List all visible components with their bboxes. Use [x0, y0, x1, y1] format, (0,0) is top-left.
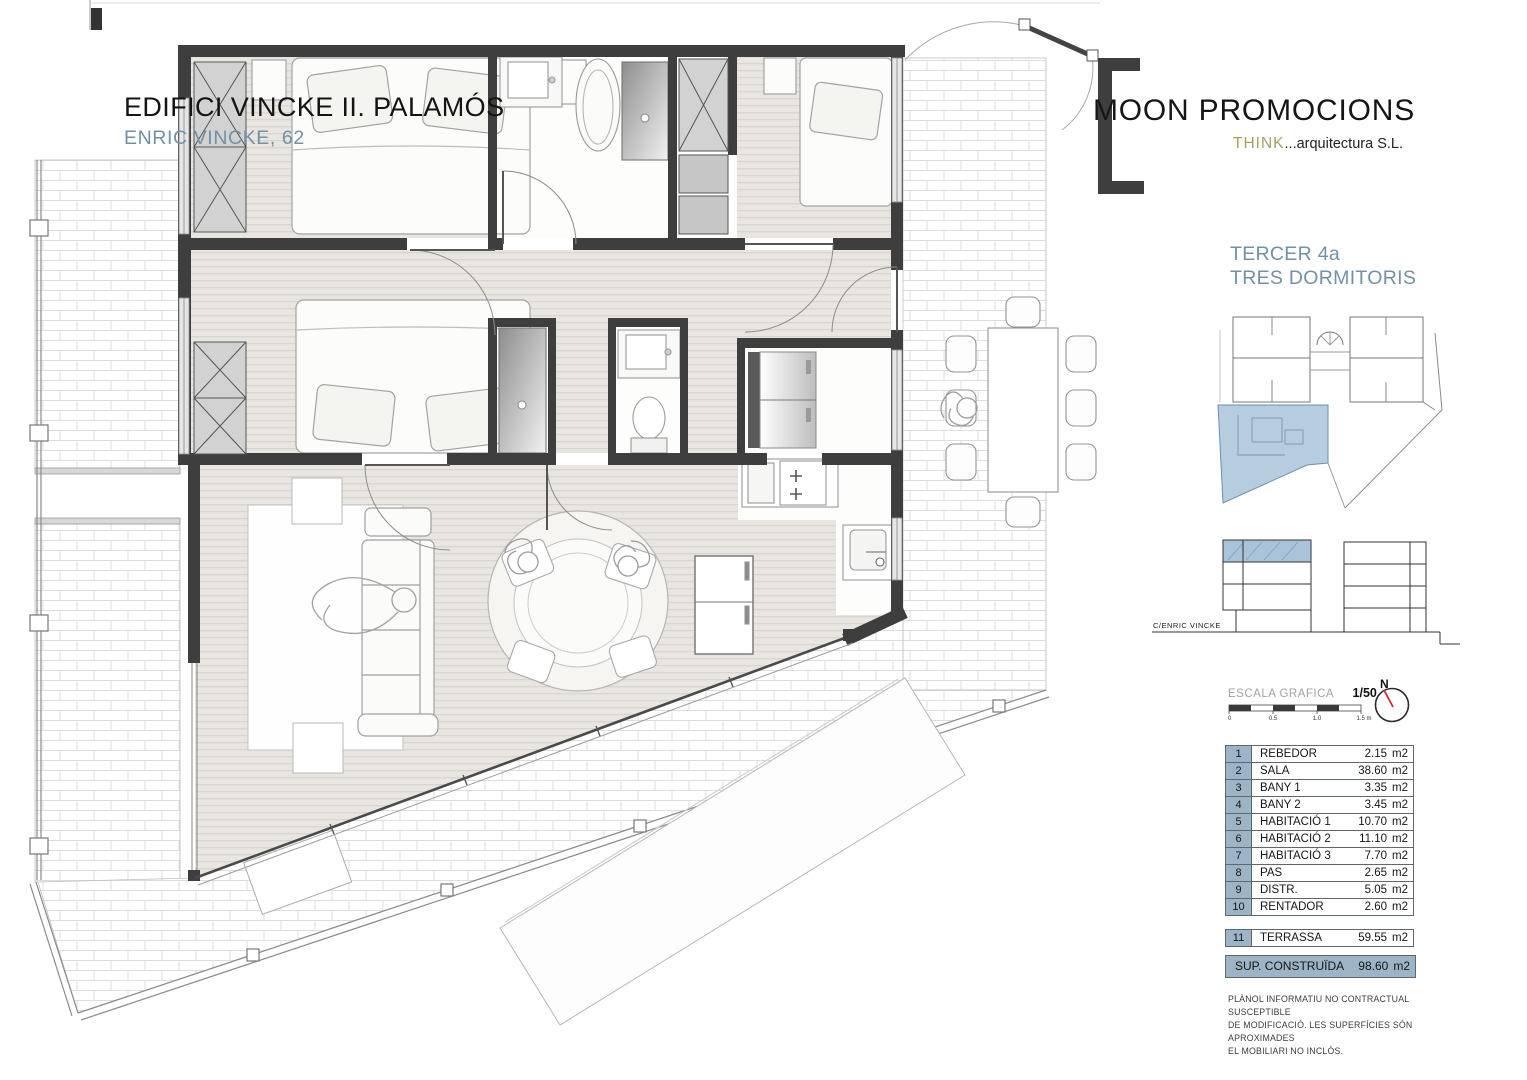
- area-value: 3.35: [1365, 780, 1387, 796]
- room-name: PAS: [1252, 865, 1344, 881]
- room-name: DISTR.: [1252, 882, 1344, 898]
- room-name: HABITACIÓ 2: [1252, 831, 1344, 847]
- area-row: 7HABITACIÓ 37.70m2: [1225, 847, 1414, 865]
- room-number: 4: [1226, 797, 1252, 813]
- svg-text:0.5: 0.5: [1269, 716, 1278, 722]
- room-number: 6: [1226, 831, 1252, 847]
- unit-type: TRES DORMITORIS: [1230, 266, 1416, 290]
- sheet-frame-marks: [90, 0, 1100, 30]
- brand-block: MOON PROMOCIONS THINK...arquitectura S.L…: [1093, 94, 1415, 153]
- room-area: 38.60m2: [1344, 763, 1413, 779]
- area-unit: m2: [1392, 882, 1408, 898]
- disclaimer-line: DE MODIFICACIÓ. LES SUPERFÍCIES SÓN APRO…: [1228, 1019, 1443, 1045]
- room-number: 8: [1226, 865, 1252, 881]
- studio-name: THINK...arquitectura S.L.: [1093, 135, 1415, 153]
- area-unit: m2: [1392, 797, 1408, 813]
- area-row: 10RENTADOR2.60m2: [1225, 898, 1414, 916]
- area-unit: m2: [1392, 814, 1408, 830]
- room-number: 2: [1226, 763, 1252, 779]
- area-value: 5.05: [1365, 882, 1387, 898]
- drawing-sheet: EDIFICI VINCKE II. PALAMÓS ENRIC VINCKE,…: [0, 0, 1527, 1080]
- area-row: 11TERRASSA59.55m2: [1225, 929, 1414, 947]
- scale-row: ESCALA GRAFICA 1/50: [1228, 684, 1377, 702]
- area-row: 5HABITACIÓ 110.70m2: [1225, 813, 1414, 831]
- room-area: 2.65m2: [1344, 865, 1413, 881]
- area-row: 6HABITACIÓ 211.10m2: [1225, 830, 1414, 848]
- room-area: 2.60m2: [1344, 899, 1413, 915]
- company-name: MOON PROMOCIONS: [1093, 94, 1415, 128]
- area-row: 4BANY 23.45m2: [1225, 796, 1414, 814]
- area-table: 1REBEDOR2.15m22SALA38.60m23BANY 13.35m24…: [1225, 746, 1414, 947]
- area-row: 3BANY 13.35m2: [1225, 779, 1414, 797]
- room-name: HABITACIÓ 3: [1252, 848, 1344, 864]
- room-name: SALA: [1252, 763, 1344, 779]
- disclaimer-line: PLÀNOL INFORMATIU NO CONTRACTUAL SUSCEPT…: [1228, 993, 1443, 1019]
- area-value: 7.70: [1365, 848, 1387, 864]
- area-value: 11.10: [1359, 831, 1387, 847]
- studio-rest: ...arquitectura S.L.: [1285, 136, 1403, 152]
- street-label: C/ENRIC VINCKE: [1153, 621, 1221, 630]
- room-name: BANY 2: [1252, 797, 1344, 813]
- room-area: 59.55m2: [1344, 930, 1413, 946]
- area-value: 38.60: [1358, 763, 1387, 779]
- room-name: REBEDOR: [1252, 746, 1344, 762]
- room-number: 5: [1226, 814, 1252, 830]
- title-block: EDIFICI VINCKE II. PALAMÓS ENRIC VINCKE,…: [124, 92, 504, 150]
- room-name: TERRASSA: [1252, 930, 1344, 946]
- room-area: 5.05m2: [1344, 882, 1413, 898]
- scale-ratio: 1/50: [1353, 686, 1377, 700]
- area-unit: m2: [1392, 780, 1408, 796]
- hall-closet: [679, 59, 728, 234]
- unit-name: TERCER 4a: [1230, 242, 1416, 266]
- area-unit: m2: [1392, 930, 1408, 946]
- total-label: SUP. CONSTRUÏDA: [1226, 956, 1358, 977]
- floor-plan: [0, 0, 1150, 1080]
- svg-text:0: 0: [1228, 716, 1232, 722]
- room-area: 3.45m2: [1344, 797, 1413, 813]
- total-row: SUP. CONSTRUÏDA 98.60 m2: [1225, 955, 1416, 978]
- shower-room-fixtures: [499, 328, 546, 453]
- page-title: EDIFICI VINCKE II. PALAMÓS: [124, 92, 504, 123]
- balcony-dividers: [35, 468, 180, 524]
- area-value: 10.70: [1358, 814, 1387, 830]
- scale-bar: 0 0.5 1.0 1.5 m: [1228, 702, 1378, 722]
- elevation-diagram: C/ENRIC VINCKE: [1150, 532, 1462, 650]
- key-plan: [1190, 290, 1446, 518]
- room-area: 7.70m2: [1344, 848, 1413, 864]
- room-name: BANY 1: [1252, 780, 1344, 796]
- north-label: N: [1380, 677, 1389, 691]
- disclaimer: PLÀNOL INFORMATIU NO CONTRACTUAL SUSCEPT…: [1228, 993, 1443, 1058]
- room-area: 2.15m2: [1344, 746, 1413, 762]
- wardrobe-bedroom2: [194, 342, 246, 454]
- unit-label: TERCER 4a TRES DORMITORIS: [1230, 242, 1416, 290]
- area-value: 3.45: [1365, 797, 1387, 813]
- area-row: 1REBEDOR2.15m2: [1225, 745, 1414, 763]
- room-number: 3: [1226, 780, 1252, 796]
- room-name: HABITACIÓ 1: [1252, 814, 1344, 830]
- area-unit: m2: [1392, 746, 1408, 762]
- room-area: 10.70m2: [1344, 814, 1413, 830]
- area-unit: m2: [1392, 865, 1408, 881]
- area-unit: m2: [1392, 763, 1408, 779]
- area-unit: m2: [1392, 848, 1408, 864]
- area-row: 8PAS2.65m2: [1225, 864, 1414, 882]
- area-value: 2.65: [1365, 865, 1387, 881]
- room-number: 10: [1226, 899, 1252, 915]
- room-number: 9: [1226, 882, 1252, 898]
- room-area: 3.35m2: [1344, 780, 1413, 796]
- room-number: 11: [1226, 930, 1252, 946]
- room-number: 7: [1226, 848, 1252, 864]
- area-row: 2SALA38.60m2: [1225, 762, 1414, 780]
- studio-accent: THINK: [1233, 135, 1285, 152]
- room-number: 1: [1226, 746, 1252, 762]
- svg-text:1.0: 1.0: [1313, 716, 1322, 722]
- page-subtitle: ENRIC VINCKE, 62: [124, 127, 504, 150]
- room-name: RENTADOR: [1252, 899, 1344, 915]
- area-row: 9DISTR.5.05m2: [1225, 881, 1414, 899]
- total-value: 98.60 m2: [1358, 956, 1415, 977]
- area-value: 2.60: [1365, 899, 1387, 915]
- laundry-appliances: [748, 352, 816, 448]
- room-area: 11.10m2: [1344, 831, 1413, 847]
- area-unit: m2: [1392, 831, 1408, 847]
- area-unit: m2: [1392, 899, 1408, 915]
- disclaimer-line: EL MOBILIARI NO INCLÒS.: [1228, 1045, 1443, 1058]
- scale-label: ESCALA GRAFICA: [1228, 688, 1334, 700]
- area-value: 2.15: [1365, 746, 1387, 762]
- highlighted-unit: [1218, 405, 1328, 503]
- area-value: 59.55: [1358, 930, 1387, 946]
